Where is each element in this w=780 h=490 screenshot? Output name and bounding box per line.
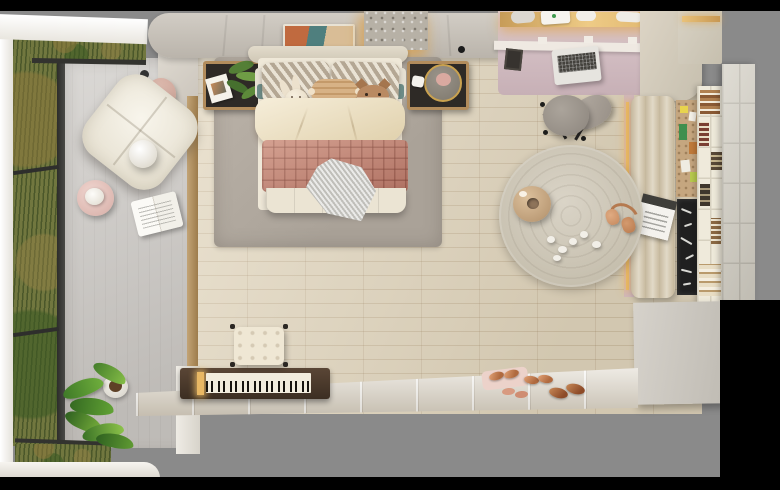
- mirror-tray-blush-item: [436, 73, 451, 86]
- rug-toy-2: [558, 246, 567, 253]
- lumbar-pompom-left: [308, 88, 315, 95]
- side-table-teapot: [85, 188, 104, 205]
- piano-led-glow: [197, 372, 204, 395]
- wall-hook-dot: [458, 46, 465, 53]
- letterbox-top: [0, 0, 780, 11]
- cork-note-yellow: [680, 106, 688, 113]
- donut-pouf-hole: [527, 198, 539, 209]
- bench-leg-1: [230, 324, 235, 329]
- window-left-greenery: [13, 38, 57, 446]
- shelf-gadget-pad-dot: [552, 14, 556, 18]
- desk-partition-tab-1: [538, 37, 547, 44]
- shelf-gadget-speaker: [576, 10, 596, 21]
- cork-note-orange: [689, 142, 697, 154]
- textured-panel: [364, 10, 428, 50]
- shelf-books-1: [700, 90, 720, 114]
- plush-fox-eye-1: [365, 93, 368, 96]
- cork-note-white-1: [688, 112, 696, 122]
- shelf-gadget-tray: [616, 11, 642, 22]
- pendant-lamp-shade: [129, 140, 157, 168]
- outer-wall-bottom: [0, 462, 160, 478]
- cork-note-green: [679, 124, 687, 140]
- room-render: [0, 0, 780, 490]
- chair-caster-1: [543, 130, 548, 135]
- nightstand-cup: [411, 75, 425, 88]
- cork-note-white-2: [680, 160, 690, 173]
- plush-fox-eye-2: [378, 93, 381, 96]
- shelf-books-3: [711, 152, 722, 170]
- shelf-books-2: [699, 122, 709, 146]
- outer-wall-top: [0, 14, 148, 44]
- outer-wall-left: [0, 16, 13, 472]
- shelf-books-4: [700, 184, 710, 206]
- desk-partition-tab-3: [628, 37, 637, 44]
- bench-leg-2: [283, 324, 288, 329]
- corner-cabinet-led: [682, 16, 720, 22]
- rug-toy-4: [580, 231, 588, 238]
- wardrobe-top: [722, 64, 755, 304]
- shelf-books-5: [711, 218, 721, 244]
- chair-caster-2: [581, 136, 586, 141]
- piano-keys-black: [206, 381, 311, 392]
- letterbox-bottom: [0, 477, 780, 490]
- bench-leg-3: [230, 362, 235, 367]
- rug-toy-6: [553, 255, 561, 261]
- desk-photo-frame: [504, 48, 523, 71]
- donut-pouf-highlight: [519, 191, 527, 197]
- desk-chair-seat: [543, 95, 589, 136]
- wardrobe-side-panel: [633, 301, 723, 405]
- chalkboard: [677, 199, 699, 295]
- desk-partition-tab-2: [584, 36, 593, 43]
- bench-leg-4: [283, 362, 288, 367]
- rug-toy-1: [547, 236, 555, 243]
- rug-toy-5: [592, 241, 601, 248]
- piano-bench: [234, 327, 284, 365]
- window-left-frame: [57, 38, 65, 448]
- rug-toy-3: [569, 238, 577, 245]
- shelf-books-6: [699, 264, 721, 296]
